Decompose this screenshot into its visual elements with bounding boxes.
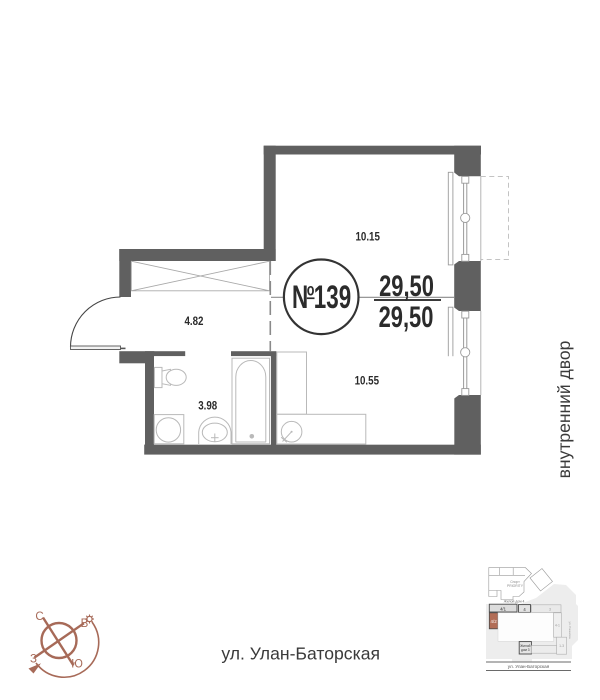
svg-text:С: С <box>35 611 43 623</box>
svg-text:1-3: 1-3 <box>559 644 564 648</box>
svg-text:139: 139 <box>314 279 351 315</box>
svg-text:4/2: 4/2 <box>491 619 498 624</box>
svg-text:внутренний двор: внутренний двор <box>554 341 574 479</box>
svg-text:З: З <box>30 654 37 666</box>
svg-text:4.82: 4.82 <box>184 315 203 328</box>
svg-text:10.55: 10.55 <box>355 375 379 388</box>
svg-text:Ю: Ю <box>71 659 83 671</box>
svg-text:PRIORITY: PRIORITY <box>507 584 524 588</box>
svg-text:N: N <box>292 279 308 315</box>
svg-text:3.98: 3.98 <box>198 400 217 413</box>
svg-text:29,50: 29,50 <box>379 299 434 333</box>
svg-text:3: 3 <box>549 608 551 612</box>
svg-text:4-1: 4-1 <box>555 624 560 628</box>
svg-text:ул. Ржанова: ул. Ржанова <box>568 621 572 638</box>
svg-text:Жилой дом 4: Жилой дом 4 <box>504 600 525 604</box>
svg-text:ул. Улан-Баторская: ул. Улан-Баторская <box>508 664 550 669</box>
svg-text:10.15: 10.15 <box>355 231 379 244</box>
svg-text:29,50: 29,50 <box>379 269 434 303</box>
svg-text:В: В <box>81 618 89 630</box>
svg-text:4/1: 4/1 <box>500 607 506 612</box>
svg-text:ул. Улан-Баторская: ул. Улан-Баторская <box>221 644 380 664</box>
svg-text:дом 3: дом 3 <box>521 648 530 652</box>
